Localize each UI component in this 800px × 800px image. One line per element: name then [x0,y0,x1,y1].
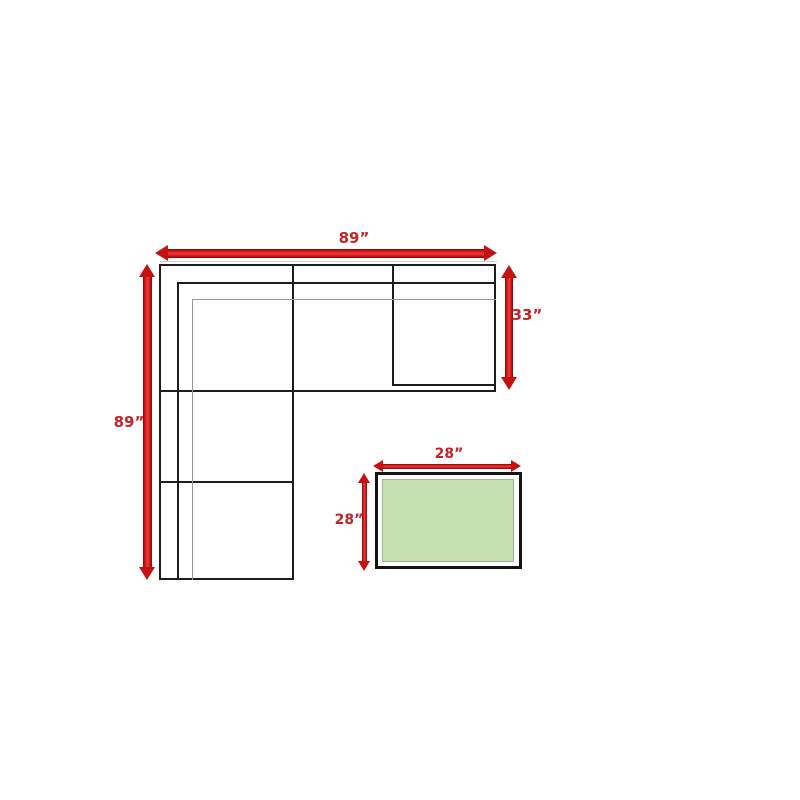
sofa-chaise-seat-divider [159,481,294,483]
sofa-cushion-line [192,299,496,300]
arrow-down-icon [501,377,517,390]
arrow-up-icon [501,265,517,278]
ottoman-depth-arrow [362,483,367,562]
arrow-up-icon [358,473,370,483]
sofa-width-arrow [167,249,488,258]
sofa-chaise-right-edge [292,390,294,580]
sofa-width-label: 89” [324,229,384,247]
arrow-down-icon [358,561,370,571]
arrow-right-icon [511,460,521,472]
ottoman-surface [382,479,514,562]
sofa-outline-top-edge [159,264,496,266]
arrow-down-icon [139,567,155,580]
arrow-shadow-line [160,261,497,262]
arrow-right-icon [484,245,497,261]
ottoman-depth-label: 28” [319,511,379,529]
ottoman-width-label: 28” [419,445,479,463]
sofa-depth-arrow [505,277,513,378]
diagram-canvas: 89” 89” 33” 28” 28” [0,0,800,800]
sofa-backrest-line [177,282,179,580]
arrow-left-icon [373,460,383,472]
ottoman-outline [375,472,522,569]
sofa-cushion-line [192,299,193,580]
sofa-length-arrow [143,276,152,568]
sofa-backrest-line [177,282,496,284]
sofa-front-edge [159,390,496,392]
arrow-up-icon [139,264,155,277]
arrow-left-icon [155,245,168,261]
sofa-outline-bottom-edge [159,578,294,580]
sofa-seat-front-edge [392,384,496,386]
ottoman-width-arrow [383,464,511,469]
sofa-outline-left-edge [159,264,161,580]
